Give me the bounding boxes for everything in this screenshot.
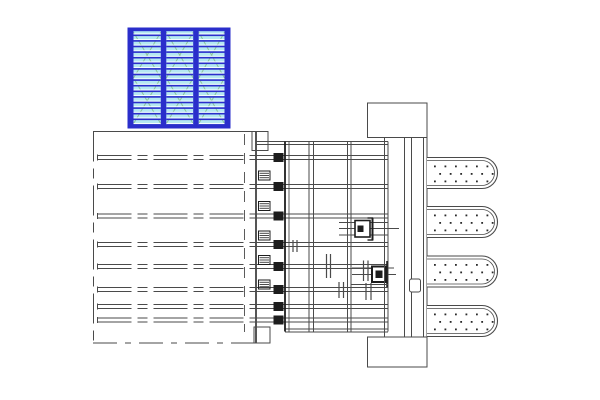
pile-dot (445, 230, 447, 232)
pile-dot (487, 279, 489, 281)
pile-dot (439, 173, 441, 175)
pile-dot (455, 215, 457, 217)
anchor-head-square (274, 285, 284, 294)
pile-dot (455, 279, 457, 281)
pile-dot (487, 181, 489, 183)
pile (427, 207, 497, 238)
pile-dot (476, 279, 478, 281)
pile-dot (439, 272, 441, 274)
pile-dot (450, 272, 452, 274)
pile-dot (492, 321, 494, 323)
pile-dot (492, 222, 494, 224)
pile-dot (476, 166, 478, 168)
anchor-head-square (274, 212, 284, 221)
pile-dot (487, 264, 489, 266)
pile-dot (466, 279, 468, 281)
pile-dot (487, 329, 489, 331)
panel-mullion (161, 28, 167, 128)
anchor-head-square (274, 240, 284, 249)
column-cap-top (368, 103, 428, 138)
pile-dot (434, 166, 436, 168)
pile-dot (487, 215, 489, 217)
pile-dot (476, 314, 478, 316)
pile-dot (481, 321, 483, 323)
pile-dot (471, 321, 473, 323)
pile-dot (460, 272, 462, 274)
pile-dot (445, 329, 447, 331)
pile-dot (476, 230, 478, 232)
pile-dot (445, 279, 447, 281)
pile (427, 306, 497, 337)
pile-dot (466, 329, 468, 331)
pile-dot (450, 321, 452, 323)
pile-dot (476, 329, 478, 331)
anchor-beams (98, 155, 389, 324)
pile-dot (481, 173, 483, 175)
pile-dot (434, 181, 436, 183)
pile-dot (455, 181, 457, 183)
panel-mullion (225, 28, 231, 128)
column-handle (410, 279, 421, 292)
anchor-head-square (274, 153, 284, 162)
anchor-head-square (274, 182, 284, 191)
formwork-panel-block[interactable] (128, 28, 230, 128)
pile-dot (476, 215, 478, 217)
pile-dot (466, 264, 468, 266)
pile-dot (471, 173, 473, 175)
pile-dot (476, 181, 478, 183)
cad-drawing (0, 0, 600, 400)
pile-dot (487, 230, 489, 232)
drawing-canvas (0, 0, 600, 400)
pile-dot (434, 215, 436, 217)
pile-dot (471, 272, 473, 274)
pile-dot (434, 329, 436, 331)
pile-dot (445, 264, 447, 266)
pile-dot (460, 173, 462, 175)
pile-dot (445, 166, 447, 168)
pile-dot (434, 279, 436, 281)
pile-dot (492, 173, 494, 175)
pile-dot (455, 264, 457, 266)
pile-dot (466, 314, 468, 316)
pile-dot (445, 215, 447, 217)
pile-dot (450, 222, 452, 224)
pile-dot (434, 230, 436, 232)
pile-dot (487, 314, 489, 316)
pile-dot (460, 222, 462, 224)
pile (427, 256, 497, 287)
pile-dot (455, 166, 457, 168)
pile-dot (455, 230, 457, 232)
pile-dot (445, 181, 447, 183)
pile-dot (434, 314, 436, 316)
pile-dot (492, 272, 494, 274)
anchor-head-square (274, 262, 284, 271)
retaining-wall (259, 142, 290, 332)
pile-dot (439, 222, 441, 224)
pile-dot (434, 264, 436, 266)
panel-mullion (193, 28, 199, 128)
pile-dot (466, 230, 468, 232)
pile-dot (481, 272, 483, 274)
pile-dot (455, 314, 457, 316)
pile-dot (460, 321, 462, 323)
excavation-zone (93, 132, 270, 344)
pile-dot (476, 264, 478, 266)
pile-dot (487, 166, 489, 168)
pile-dot (439, 321, 441, 323)
pile-dot (471, 222, 473, 224)
column-cap-bottom (368, 337, 428, 367)
pile-dot (466, 181, 468, 183)
pile-dot (466, 215, 468, 217)
pile-dot (450, 173, 452, 175)
piles (427, 158, 497, 337)
anchor-head-square (274, 316, 284, 325)
pile-dot (445, 314, 447, 316)
panel-mullion (128, 28, 134, 128)
pile-dot (455, 329, 457, 331)
pile-dot (481, 222, 483, 224)
pile-dot (466, 166, 468, 168)
anchor-head-square (274, 302, 284, 311)
pile (427, 158, 497, 189)
